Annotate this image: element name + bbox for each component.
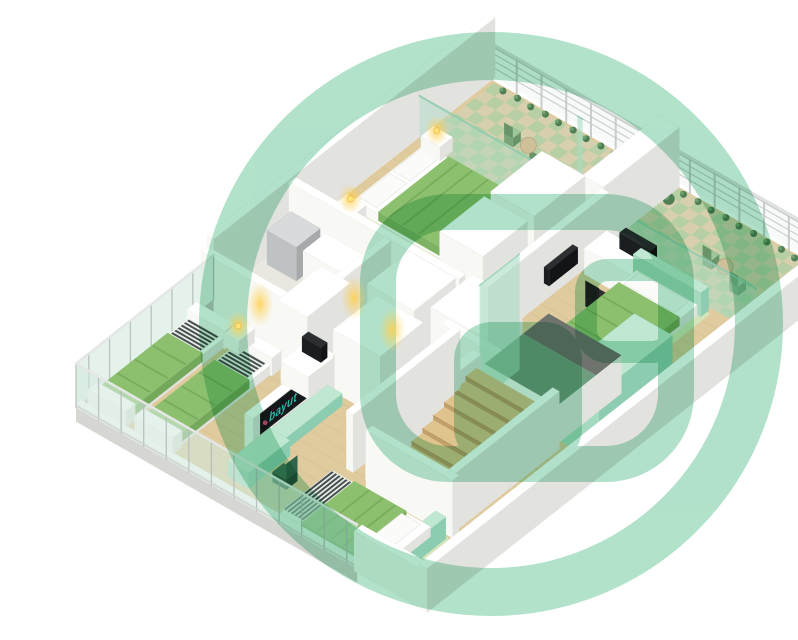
floor-plan-figure: bayut	[40, 16, 798, 624]
bayut-watermark	[40, 16, 798, 624]
bayut-logo-watermark	[223, 56, 759, 592]
